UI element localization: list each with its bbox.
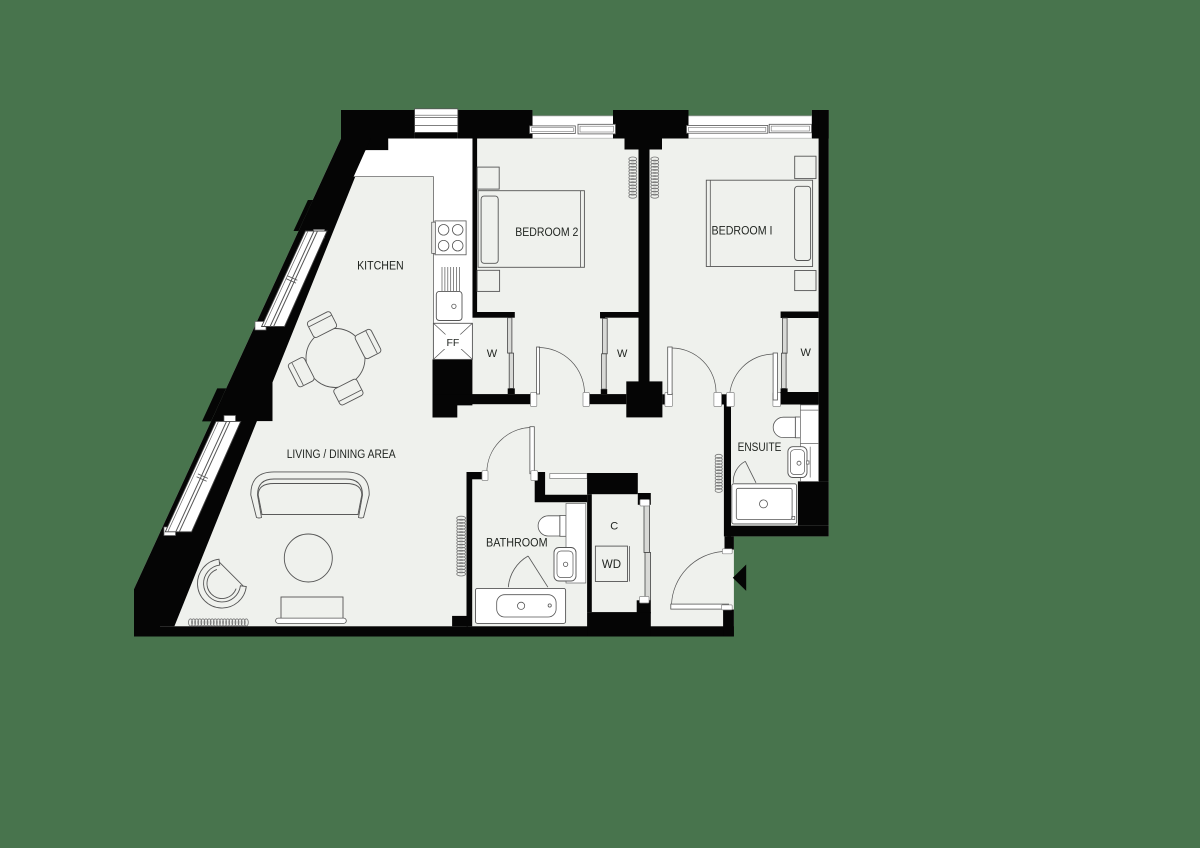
svg-text:W: W xyxy=(801,347,812,359)
svg-text:BEDROOM 2: BEDROOM 2 xyxy=(515,227,578,239)
svg-text:ENSUITE: ENSUITE xyxy=(738,442,782,454)
svg-text:C: C xyxy=(610,520,618,532)
svg-text:LIVING / DINING AREA: LIVING / DINING AREA xyxy=(287,449,396,461)
svg-text:FF: FF xyxy=(446,337,459,349)
svg-text:KITCHEN: KITCHEN xyxy=(357,261,404,273)
svg-text:W: W xyxy=(617,348,628,360)
svg-text:BATHROOM: BATHROOM xyxy=(486,538,548,550)
svg-text:WD: WD xyxy=(602,559,621,571)
svg-text:BEDROOM I: BEDROOM I xyxy=(712,225,773,237)
svg-text:W: W xyxy=(487,348,498,360)
